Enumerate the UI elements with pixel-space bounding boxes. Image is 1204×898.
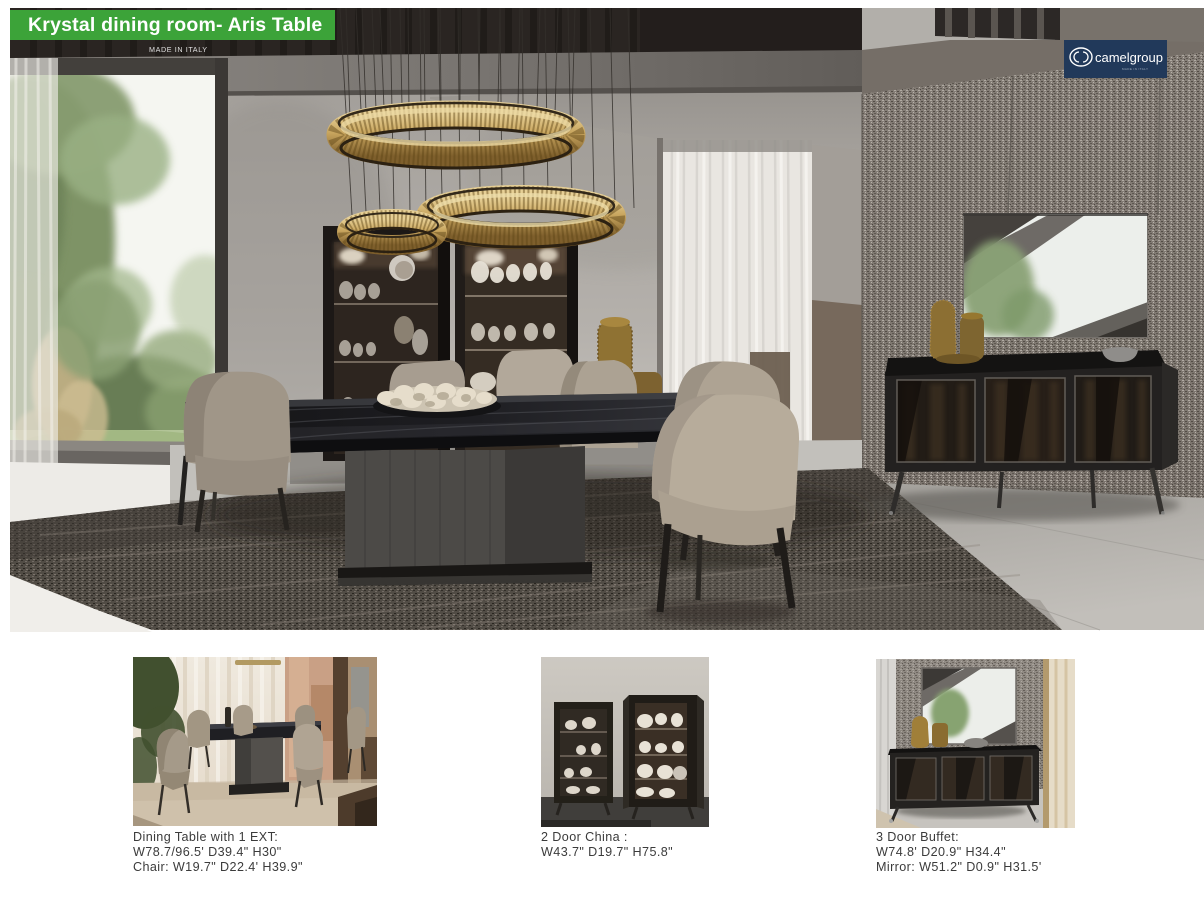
svg-text:camelgroup: camelgroup: [1095, 50, 1163, 65]
svg-text:MADE IN ITALY: MADE IN ITALY: [149, 45, 208, 54]
svg-text:MADE IN ITALY: MADE IN ITALY: [1122, 67, 1148, 71]
